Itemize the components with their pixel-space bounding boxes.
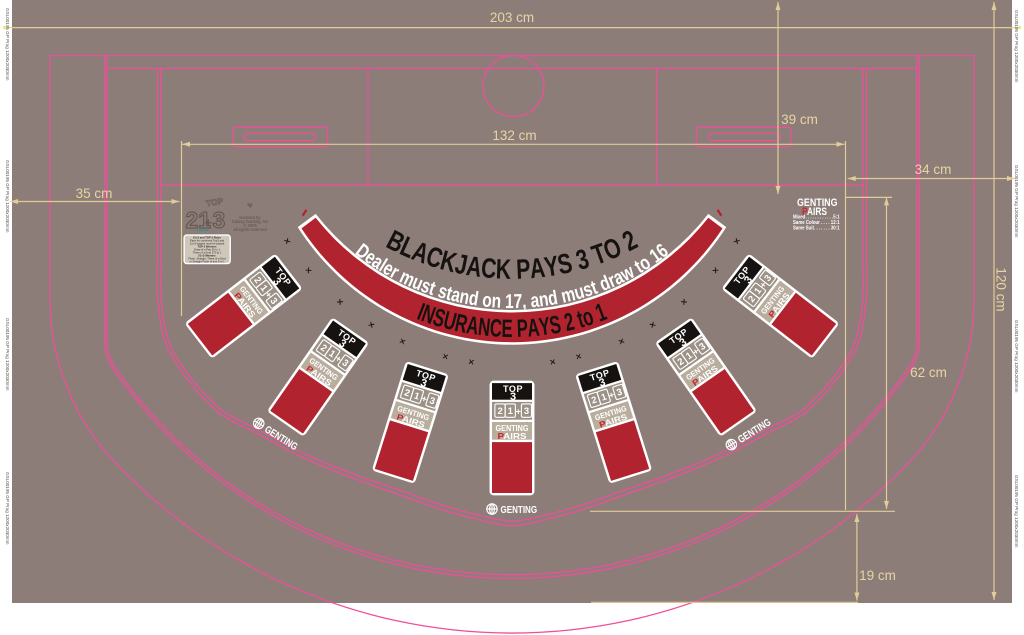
svg-text:GSL00195 GP Prog 1200x2030mm: GSL00195 GP Prog 1200x2030mm <box>5 472 10 545</box>
svg-text:2: 2 <box>497 406 502 417</box>
svg-text:all rights reserved: all rights reserved <box>233 227 267 232</box>
svg-text:35 cm: 35 cm <box>76 186 113 201</box>
svg-text:K: K <box>495 255 511 286</box>
svg-text:PAIRS: PAIRS <box>498 431 527 441</box>
svg-text:19 cm: 19 cm <box>859 568 896 583</box>
svg-text:62 cm: 62 cm <box>910 365 947 380</box>
svg-text:GENTING: GENTING <box>501 504 538 516</box>
svg-text:203 cm: 203 cm <box>490 10 534 25</box>
svg-text:GSL00195 GP Prog 1200x2030mm: GSL00195 GP Prog 1200x2030mm <box>5 160 10 233</box>
svg-text:3: 3 <box>510 391 516 403</box>
svg-text:+: + <box>516 406 521 416</box>
svg-text:+: + <box>205 215 213 230</box>
svg-text:1: 1 <box>508 406 514 417</box>
svg-text:GSL00195 GP Prog 1200x2030mm: GSL00195 GP Prog 1200x2030mm <box>1014 165 1019 238</box>
svg-text:120 cm: 120 cm <box>994 267 1009 311</box>
svg-text:Same Suit. . . . . . . 30:1: Same Suit. . . . . . . 30:1 <box>793 225 840 231</box>
svg-text:GSL00195 GP Prog 1200x2030mm: GSL00195 GP Prog 1200x2030mm <box>1014 475 1019 548</box>
svg-text:E: E <box>501 314 513 343</box>
svg-text:GSL00195 GP Prog 1200x2030mm: GSL00195 GP Prog 1200x2030mm <box>5 8 10 81</box>
svg-text:n: n <box>491 289 502 312</box>
svg-text:3: 3 <box>213 207 226 233</box>
svg-text:39 cm: 39 cm <box>781 112 818 127</box>
svg-text:3: 3 <box>524 406 529 417</box>
svg-text:GSL00195 GP Prog 1200x2030mm: GSL00195 GP Prog 1200x2030mm <box>1014 320 1019 393</box>
svg-text:GSL00195 GP Prog 1200x2030mm: GSL00195 GP Prog 1200x2030mm <box>1014 10 1019 83</box>
svg-text:or Straight Flush of any 9 to: or Straight Flush of any 9 to 1 <box>189 260 225 264</box>
svg-text:34 cm: 34 cm <box>915 162 952 177</box>
svg-text:132 cm: 132 cm <box>492 128 536 143</box>
svg-text:1: 1 <box>505 290 514 312</box>
svg-text:GSL00195 GP Prog 1200x2030mm: GSL00195 GP Prog 1200x2030mm <box>5 318 10 391</box>
